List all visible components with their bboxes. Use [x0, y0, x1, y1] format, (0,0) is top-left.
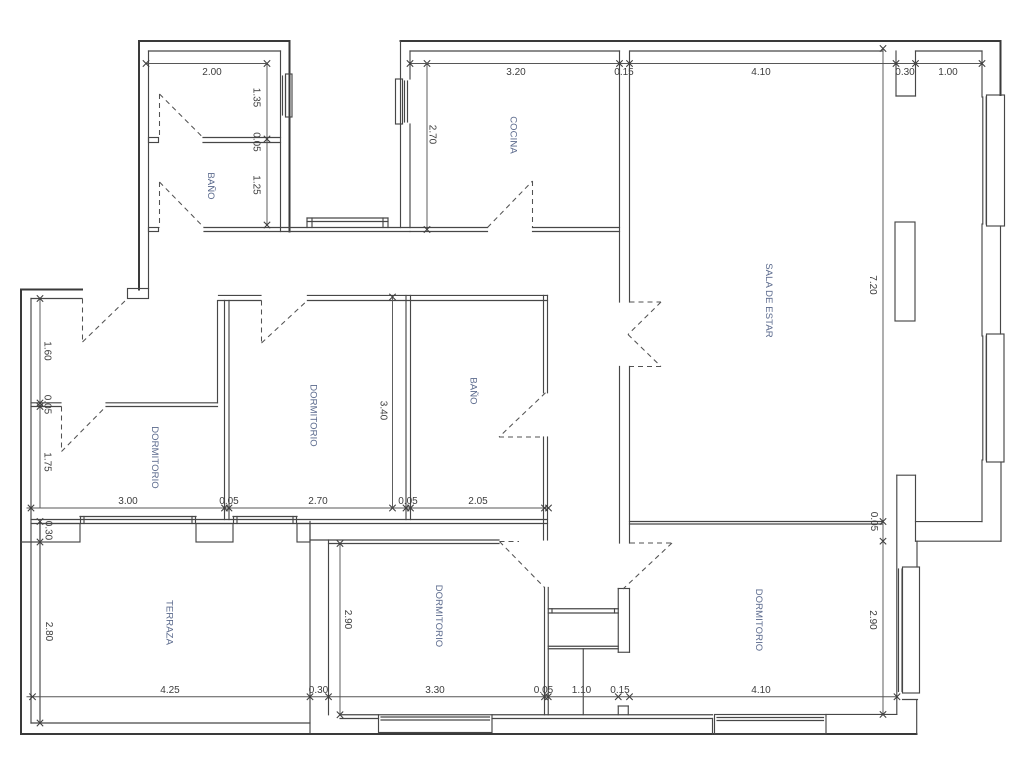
svg-text:3.40: 3.40 — [378, 401, 389, 421]
svg-text:3.20: 3.20 — [506, 67, 526, 78]
svg-text:COCINA: COCINA — [508, 116, 519, 154]
svg-text:DORMITORIO: DORMITORIO — [308, 384, 319, 447]
svg-text:DORMITORIO: DORMITORIO — [753, 589, 764, 652]
svg-text:BAÑO: BAÑO — [468, 377, 479, 404]
svg-text:4.10: 4.10 — [751, 685, 771, 696]
svg-text:2.00: 2.00 — [202, 67, 222, 78]
svg-text:2.90: 2.90 — [867, 610, 878, 630]
svg-text:1.10: 1.10 — [572, 685, 592, 696]
svg-text:2.70: 2.70 — [308, 496, 328, 507]
svg-text:2.80: 2.80 — [43, 622, 54, 642]
svg-text:4.25: 4.25 — [160, 685, 180, 696]
svg-text:4.10: 4.10 — [751, 67, 771, 78]
svg-text:0.05: 0.05 — [398, 496, 418, 507]
svg-text:3.30: 3.30 — [425, 685, 445, 696]
svg-text:2.90: 2.90 — [342, 610, 353, 630]
svg-text:0.05: 0.05 — [868, 512, 879, 532]
svg-text:0.05: 0.05 — [42, 395, 53, 415]
svg-text:7.20: 7.20 — [867, 275, 878, 295]
svg-text:1.60: 1.60 — [42, 341, 53, 361]
svg-text:0.05: 0.05 — [534, 685, 554, 696]
svg-text:SALA DE ESTAR: SALA DE ESTAR — [763, 263, 774, 338]
svg-text:2.05: 2.05 — [468, 496, 488, 507]
svg-text:DORMITORIO: DORMITORIO — [433, 585, 444, 648]
svg-text:1.75: 1.75 — [42, 452, 53, 472]
svg-text:0.30: 0.30 — [309, 685, 329, 696]
svg-text:0.05: 0.05 — [251, 132, 262, 152]
svg-text:0.05: 0.05 — [219, 496, 239, 507]
svg-text:BAÑO: BAÑO — [205, 172, 216, 199]
svg-text:3.00: 3.00 — [118, 496, 138, 507]
svg-text:0.30: 0.30 — [895, 67, 915, 78]
svg-text:TERRAZA: TERRAZA — [164, 600, 175, 646]
svg-text:1.35: 1.35 — [251, 88, 262, 108]
svg-text:1.25: 1.25 — [251, 175, 262, 195]
svg-text:2.70: 2.70 — [427, 125, 438, 145]
svg-text:DORMITORIO: DORMITORIO — [149, 426, 160, 489]
svg-text:0.15: 0.15 — [610, 685, 630, 696]
svg-text:0.15: 0.15 — [614, 67, 634, 78]
svg-text:1.00: 1.00 — [938, 67, 958, 78]
